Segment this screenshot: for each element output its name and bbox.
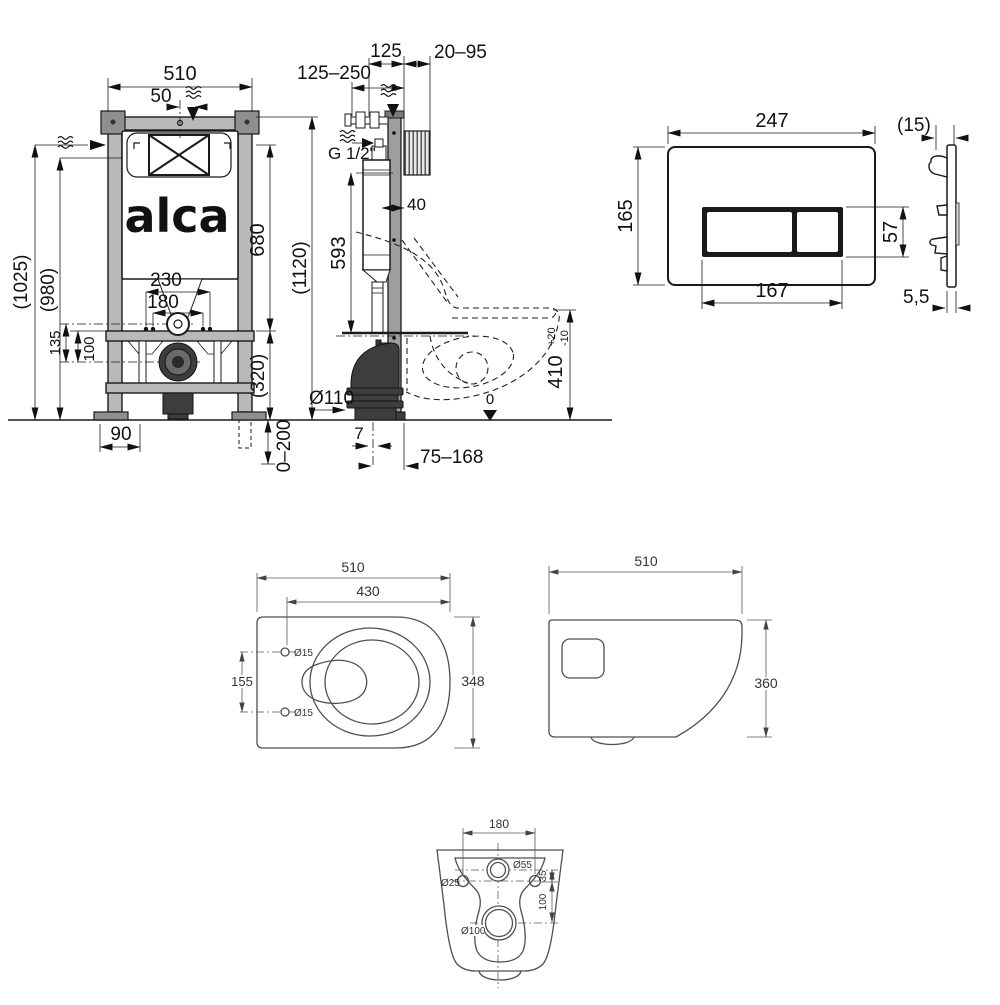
dim-inlet-to-drain: 135: [47, 330, 64, 355]
dim-frame-height: (1120): [290, 241, 311, 295]
small-flush-button: [797, 212, 838, 252]
dim-foot-width: 90: [110, 424, 131, 445]
dim-hole-spacing: 155: [231, 674, 253, 689]
dim-inlet-diameter: Ø55: [513, 860, 532, 871]
dim-bolt-to-drain: 100: [81, 336, 98, 361]
technical-drawing-sheet: alca 510 50 (1025) (980) 135 100 230 180…: [0, 0, 1000, 1000]
dim-floor-level: 0: [486, 391, 494, 408]
dim-plate-depth: (15): [897, 115, 931, 136]
dim-wc-length-side: 510: [634, 553, 658, 569]
dim-lower-section: (320): [248, 354, 269, 398]
bolt-dot: [245, 120, 250, 125]
dim-drain-range: 75–168: [420, 447, 483, 468]
dim-hole-top: Ø15: [294, 648, 313, 659]
foot-right: [232, 412, 266, 420]
bolt-dot: [111, 120, 116, 125]
seat-inner: [325, 640, 419, 724]
drawing-svg: alca 510 50 (1025) (980) 135 100 230 180…: [0, 0, 1000, 1000]
dim-wc-length-top: 510: [341, 559, 365, 575]
plate-profile: [947, 145, 956, 287]
drain-elbow-side: [351, 343, 399, 388]
seat-outer: [310, 628, 430, 736]
dim-bolt-hole-diameter: Ø25: [441, 878, 460, 889]
dim-frame-depth: 125: [370, 41, 402, 62]
wc-top-view: Ø15 Ø15 510 430 155 348: [228, 559, 488, 748]
dim-wall-clearance: 20–95: [434, 42, 487, 63]
water-flow-icon: [186, 87, 201, 99]
seat-hole-bottom: [281, 708, 289, 716]
wc-bottom-bump: [591, 737, 634, 745]
dim-bowl-height-tol-minus: -10: [559, 330, 571, 346]
dim-supply-depth-range: 125–250: [297, 63, 371, 84]
wall-bracket: [404, 131, 430, 175]
big-flush-button: [707, 212, 792, 252]
foot-left: [94, 412, 128, 420]
dim-inlet-to-bolts: 35: [538, 870, 549, 882]
wc-body-top: [257, 617, 450, 748]
wc-side-view: 510 360: [549, 553, 781, 745]
flush-plate-side-view: (15) 5,5: [897, 115, 968, 313]
water-flow-icon: [340, 131, 355, 143]
outlet-block: [163, 393, 193, 414]
dim-drain-diameter: Ø110: [309, 388, 354, 409]
clip-top: [929, 156, 947, 177]
dim-frame-width: 510: [163, 63, 196, 85]
dim-button-width: 167: [755, 280, 788, 302]
dim-wc-height: 360: [754, 675, 778, 691]
dim-plate-height: 165: [615, 199, 637, 232]
water-flow-icon: [58, 137, 73, 149]
clip-mid: [937, 205, 947, 215]
flush-inlet-square: [562, 639, 604, 678]
flush-pipe-side: [372, 282, 383, 333]
dim-cistern-depth: 40: [407, 195, 426, 214]
dim-leg-adjust: 0–200: [274, 420, 295, 473]
flush-plate-front-view: 247 165 57 167: [615, 110, 909, 309]
dim-bolt-spacing: 180: [489, 817, 509, 831]
clip-low: [930, 237, 947, 254]
dim-plate-width: 247: [755, 110, 788, 132]
wc-rear-view: Ø55 Ø25 Ø100 180 35 100: [437, 817, 563, 988]
dim-bowl-height-tol-plus: +20: [546, 327, 558, 346]
dim-outlet-diameter: Ø100: [461, 926, 486, 937]
strut-right: [214, 341, 221, 383]
dim-bolt-span-wide: 230: [150, 270, 182, 291]
water-flow-icon: [381, 85, 396, 97]
dim-wc-width-top: 348: [461, 673, 485, 689]
dim-plate-thickness: 5,5: [903, 287, 929, 308]
outlet-hole: [482, 906, 516, 940]
frame-front-view: alca 510 50 (1025) (980) 135 100 230 180…: [11, 63, 318, 472]
dim-hole-bottom: Ø15: [294, 708, 313, 719]
dim-button-height: 57: [880, 221, 902, 243]
dim-seat-length: 430: [356, 583, 380, 599]
brand-logo: alca: [124, 189, 229, 243]
inlet-elbow-front: [167, 313, 189, 335]
frame-side-view: G 1/2" 125–250 125 20–95 40 593 410 +20 …: [297, 41, 576, 470]
clip-step: [941, 256, 947, 271]
leg-extension-dashed: [239, 420, 251, 448]
plate-back-tab: [956, 203, 959, 245]
dim-bolts-to-outlet: 100: [538, 893, 549, 910]
dim-supply-offset: 50: [150, 86, 171, 107]
dim-height-install: (980): [38, 268, 59, 312]
dim-drain-offset: 7: [354, 424, 363, 443]
dim-bowl-height-group: 410 +20 -10: [545, 327, 571, 388]
wc-rear-bump: [479, 971, 521, 980]
dim-height-overall: (1025): [11, 255, 32, 310]
seat-hole-top: [281, 648, 289, 656]
dim-flush-pipe-height: 593: [328, 236, 350, 269]
lower-bar: [106, 383, 254, 393]
dim-bolt-span-narrow: 180: [147, 292, 179, 313]
supply-arrow-icon: [90, 140, 106, 150]
dim-bowl-height: 410: [545, 355, 567, 388]
cistern-side: [363, 160, 390, 270]
frame-left-rail: [108, 115, 122, 412]
dim-cistern-height: 680: [247, 223, 269, 256]
